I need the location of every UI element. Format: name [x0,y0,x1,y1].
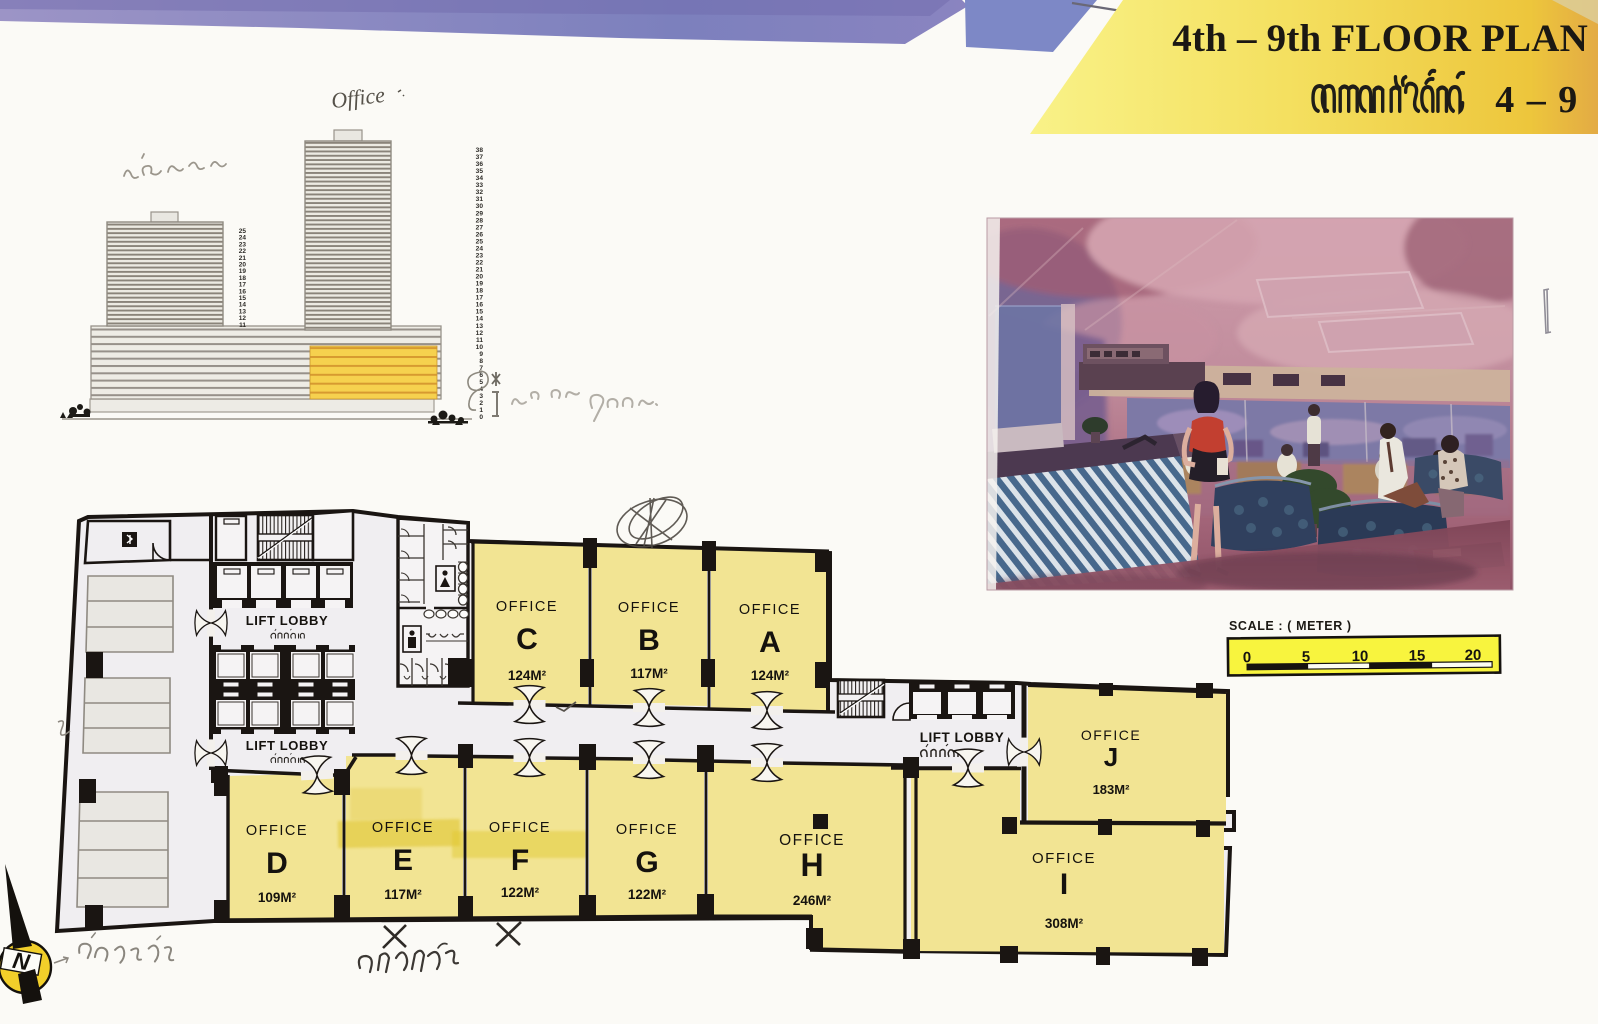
svg-text:10: 10 [476,344,484,351]
svg-text:OFFICE: OFFICE [496,599,558,615]
svg-text:2: 2 [479,400,483,407]
svg-text:C: C [516,623,538,656]
svg-text:36: 36 [476,161,484,168]
svg-text:OFFICE: OFFICE [616,822,678,838]
svg-text:13: 13 [476,323,484,330]
svg-text:246M²: 246M² [793,893,832,908]
svg-text:37: 37 [476,154,484,161]
svg-text:5: 5 [479,379,483,386]
svg-text:18: 18 [476,288,484,295]
svg-text:109M²: 109M² [258,890,297,905]
svg-text:32: 32 [476,189,484,196]
svg-text:117M²: 117M² [630,666,668,681]
svg-text:35: 35 [476,168,484,175]
svg-text:OFFICE: OFFICE [1032,850,1096,867]
svg-text:D: D [266,847,288,880]
svg-text:33: 33 [476,182,484,189]
svg-text:117M²: 117M² [384,887,422,902]
svg-text:11: 11 [239,322,246,329]
svg-text:21: 21 [476,267,484,274]
svg-text:OFFICE: OFFICE [489,820,551,836]
svg-text:25: 25 [476,238,484,245]
svg-text:183M²: 183M² [1093,782,1131,797]
svg-text:38: 38 [476,147,484,154]
svg-text:OFFICE: OFFICE [372,820,434,836]
svg-text:OFFICE: OFFICE [618,600,680,616]
svg-text:31: 31 [476,196,484,203]
svg-text:0: 0 [479,414,483,421]
svg-text:B: B [638,624,660,657]
svg-text:29: 29 [476,210,484,217]
svg-text:34: 34 [476,175,484,182]
svg-text:20: 20 [476,274,484,281]
svg-text:17: 17 [476,295,484,302]
svg-text:J: J [1104,742,1118,772]
svg-text:12: 12 [476,330,484,337]
svg-text:9: 9 [479,351,483,358]
svg-text:F: F [511,844,529,877]
svg-text:28: 28 [476,217,484,224]
svg-text:19: 19 [476,281,484,288]
svg-text:LIFT LOBBY: LIFT LOBBY [246,613,329,628]
svg-text:SCALE : ( METER ): SCALE : ( METER ) [1229,619,1352,633]
svg-text:122M²: 122M² [501,885,540,900]
svg-text:4th – 9th FLOOR PLAN: 4th – 9th FLOOR PLAN [1172,17,1588,60]
svg-text:308M²: 308M² [1045,916,1084,931]
svg-text:LIFT LOBBY: LIFT LOBBY [920,730,1005,745]
svg-text:16: 16 [476,302,484,309]
svg-text:OFFICE: OFFICE [1081,727,1141,743]
svg-text:124M²: 124M² [751,668,790,683]
svg-text:LIFT LOBBY: LIFT LOBBY [246,738,329,753]
svg-text:H: H [800,847,823,883]
svg-text:E: E [393,844,413,877]
svg-text:27: 27 [476,224,484,231]
svg-text:30: 30 [476,203,484,210]
svg-text:24: 24 [476,245,484,252]
svg-text:11: 11 [476,337,483,344]
svg-text:124M²: 124M² [508,668,547,683]
svg-text:I: I [1060,868,1068,901]
svg-text:6: 6 [479,372,483,379]
svg-text:G: G [635,846,658,879]
svg-text:14: 14 [476,316,484,323]
svg-text:3: 3 [479,393,483,400]
svg-text:22: 22 [476,260,484,267]
svg-text:1: 1 [479,407,483,414]
svg-text:4 – 9: 4 – 9 [1495,79,1579,121]
svg-text:A: A [759,626,781,659]
svg-text:122M²: 122M² [628,887,667,902]
svg-text:8: 8 [479,358,483,365]
svg-text:23: 23 [476,252,484,259]
svg-text:15: 15 [476,309,484,316]
svg-text:26: 26 [476,231,484,238]
svg-text:OFFICE: OFFICE [739,602,801,618]
svg-text:OFFICE: OFFICE [246,823,308,839]
